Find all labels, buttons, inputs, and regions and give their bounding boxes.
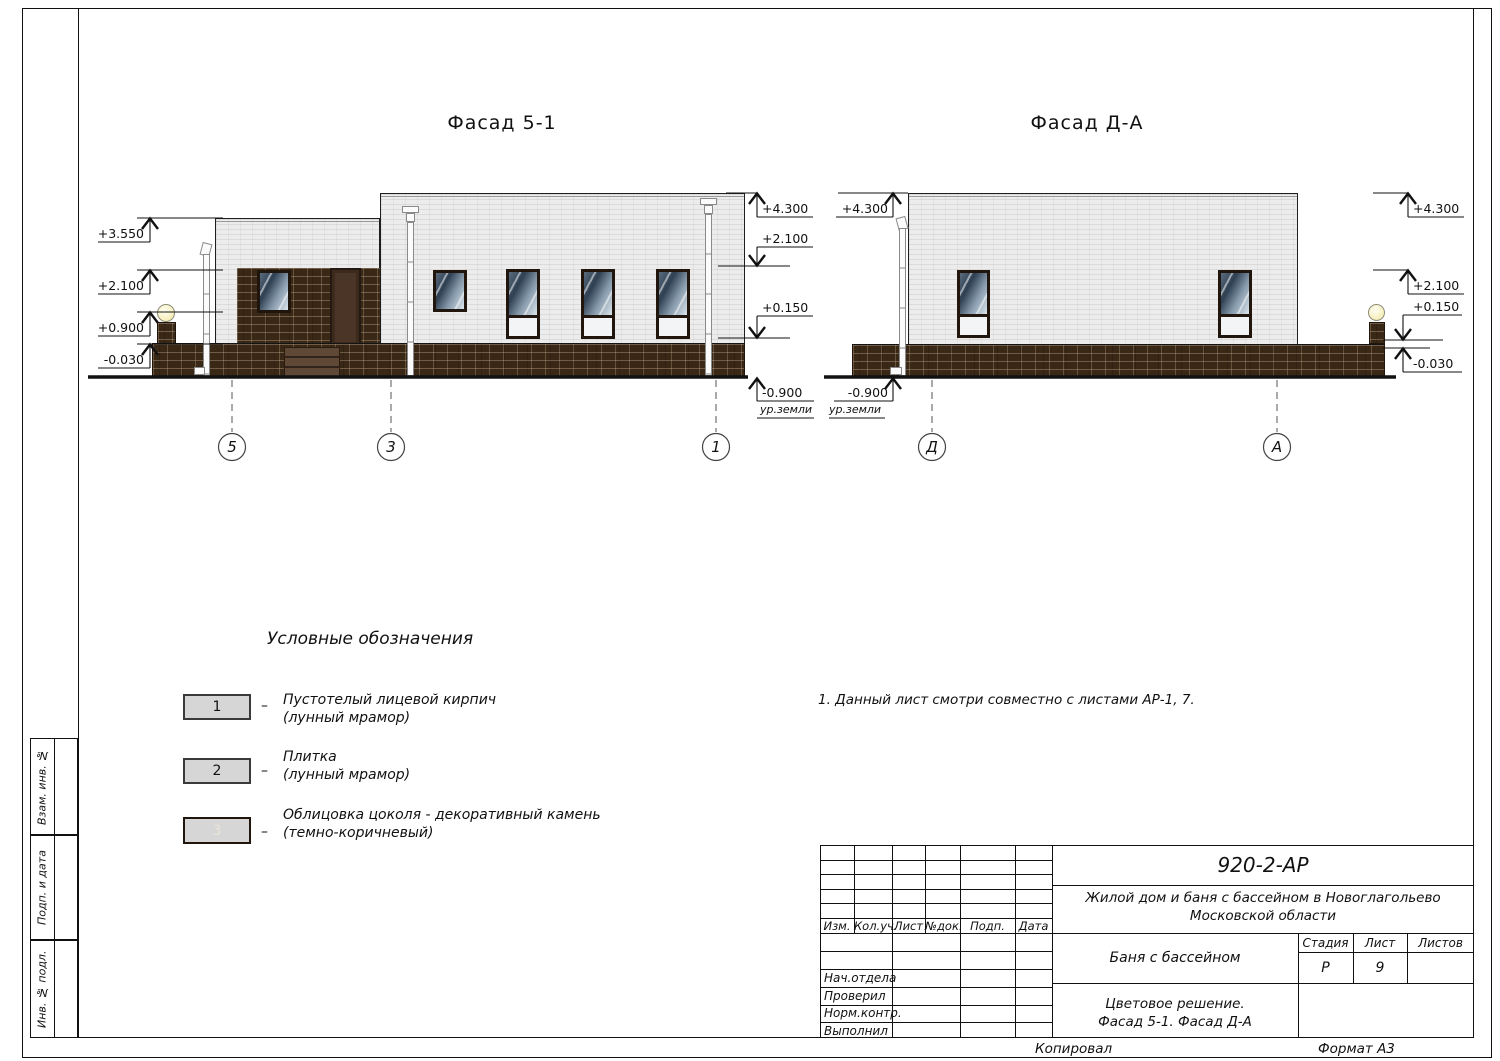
titleblock-top-line bbox=[820, 845, 1474, 846]
col-nodoc: №док. bbox=[925, 919, 960, 933]
col-list: Лист bbox=[892, 919, 925, 933]
legend-separator: – bbox=[261, 824, 268, 840]
stage-label: Стадия bbox=[1298, 936, 1353, 950]
downspout-pipe bbox=[407, 222, 414, 376]
window-4 bbox=[656, 269, 690, 339]
window-panel bbox=[659, 315, 687, 336]
downspout-pipe bbox=[705, 214, 712, 376]
downspout-foot bbox=[890, 367, 902, 375]
titleblock-line bbox=[1052, 983, 1474, 984]
window-glass bbox=[960, 273, 987, 314]
titleblock-line bbox=[1052, 885, 1474, 886]
footer-format: Формат А3 bbox=[1318, 1041, 1395, 1057]
project-name-line1: Жилой дом и баня с бассейном в Новоглаго… bbox=[1052, 890, 1474, 906]
legend-swatch-number: 3 bbox=[213, 823, 222, 839]
window-panel bbox=[584, 315, 612, 336]
legend-item-text: Пустотелый лицевой кирпич bbox=[283, 692, 496, 708]
col-izm: Изм. bbox=[820, 919, 854, 933]
window-d1 bbox=[957, 270, 990, 338]
titleblock-line bbox=[820, 933, 1052, 934]
window-glass bbox=[436, 273, 464, 309]
entrance-door bbox=[330, 268, 361, 347]
parapet-cap bbox=[381, 196, 744, 197]
plinth-left-facade bbox=[152, 343, 745, 377]
col-data: Дата bbox=[1015, 919, 1052, 933]
legend-item-text: (лунный мрамор) bbox=[283, 710, 410, 726]
legend-separator: – bbox=[261, 763, 268, 779]
sheet-inner-frame bbox=[78, 8, 1474, 1038]
window-panel bbox=[509, 315, 537, 336]
titleblock-line bbox=[820, 889, 1052, 890]
lamp-globe bbox=[157, 304, 175, 322]
downspout-funnel-neck bbox=[704, 205, 713, 214]
row-nachotdela: Нач.отдела bbox=[824, 971, 896, 985]
downspout-pipe bbox=[899, 228, 906, 376]
lamp-pillar bbox=[157, 322, 176, 344]
window-1 bbox=[433, 270, 467, 312]
window-glass bbox=[659, 272, 687, 315]
side-strip-label-vzam: Взам. инв. № bbox=[30, 738, 54, 835]
legend-item-text: Облицовка цоколя - декоративный камень bbox=[283, 807, 601, 823]
titleblock-line bbox=[1298, 952, 1474, 953]
legend-swatch-number: 2 bbox=[213, 763, 222, 779]
downspout-pipe bbox=[203, 254, 210, 376]
window-glass bbox=[260, 273, 288, 310]
object-name: Баня с бассейном bbox=[1052, 950, 1298, 966]
side-strip-label-inv: Инв. № подл. bbox=[30, 940, 54, 1038]
legend-swatch-2: 2 bbox=[183, 758, 251, 784]
sheet-note: 1. Данный лист смотри совместно с листам… bbox=[818, 692, 1195, 708]
titleblock-line bbox=[820, 987, 1052, 988]
legend-swatch-number: 1 bbox=[213, 699, 222, 715]
downspout-funnel-neck bbox=[406, 213, 415, 222]
downspout-funnel bbox=[700, 198, 717, 205]
titleblock-line bbox=[820, 874, 1052, 875]
sheet-title-line2: Фасад 5-1. Фасад Д-А bbox=[1052, 1014, 1298, 1030]
legend-item-text: (лунный мрамор) bbox=[283, 767, 410, 783]
window-d2 bbox=[1218, 270, 1252, 338]
window-glass bbox=[509, 272, 537, 315]
side-strip-label-podp: Подп. и дата bbox=[30, 835, 54, 940]
window-panel bbox=[960, 314, 987, 335]
sheets-label: Листов bbox=[1407, 936, 1474, 950]
downspout-foot bbox=[194, 367, 205, 375]
facade-left-title: Фасад 5-1 bbox=[402, 112, 602, 134]
plinth-right-facade bbox=[852, 344, 1385, 377]
titleblock-line bbox=[820, 903, 1052, 904]
footer-kopiroval: Копировал bbox=[1035, 1041, 1112, 1057]
window-glass bbox=[1221, 273, 1249, 314]
doc-number: 920-2-АР bbox=[1052, 853, 1474, 877]
downspout-funnel bbox=[402, 206, 419, 213]
col-podp: Подп. bbox=[960, 919, 1015, 933]
sheet-number-value: 9 bbox=[1353, 960, 1407, 976]
legend-swatch-3: 3 bbox=[183, 817, 251, 844]
titleblock-line bbox=[820, 1022, 1052, 1023]
project-name-line2: Московской области bbox=[1052, 908, 1474, 924]
titleblock-line bbox=[820, 951, 1052, 952]
drawing-sheet: Фасад 5-1 Фасад Д-А bbox=[0, 0, 1500, 1061]
sheet-title-line1: Цветовое решение. bbox=[1052, 996, 1298, 1012]
window-3 bbox=[581, 269, 615, 339]
legend-item-text: (темно-коричневый) bbox=[283, 825, 433, 841]
stage-value: Р bbox=[1298, 960, 1353, 976]
entrance-steps bbox=[284, 347, 340, 377]
lamp-pillar bbox=[1369, 322, 1385, 344]
lamp-globe bbox=[1368, 304, 1385, 321]
porch-window bbox=[257, 270, 291, 313]
window-glass bbox=[584, 272, 612, 315]
titleblock-line bbox=[820, 860, 1052, 861]
side-strip-divider bbox=[54, 739, 55, 834]
titleblock-line bbox=[1052, 933, 1474, 934]
window-2 bbox=[506, 269, 540, 339]
legend-item-text: Плитка bbox=[283, 749, 337, 765]
parapet-cap bbox=[216, 221, 379, 222]
parapet-cap bbox=[909, 196, 1297, 197]
row-normkontr: Норм.контр. bbox=[824, 1006, 902, 1020]
side-strip-divider bbox=[54, 836, 55, 939]
window-panel bbox=[1221, 314, 1249, 335]
legend-separator: – bbox=[261, 698, 268, 714]
titleblock-line bbox=[820, 969, 1052, 970]
col-koluch: Кол.уч. bbox=[854, 919, 892, 933]
sheet-label: Лист bbox=[1353, 936, 1407, 950]
facade-right-title: Фасад Д-А bbox=[987, 112, 1187, 134]
legend-title: Условные обозначения bbox=[267, 629, 473, 649]
legend-swatch-1: 1 bbox=[183, 694, 251, 720]
row-vypolnil: Выполнил bbox=[824, 1024, 888, 1038]
row-proveril: Проверил bbox=[824, 989, 886, 1003]
side-strip-divider bbox=[54, 941, 55, 1037]
